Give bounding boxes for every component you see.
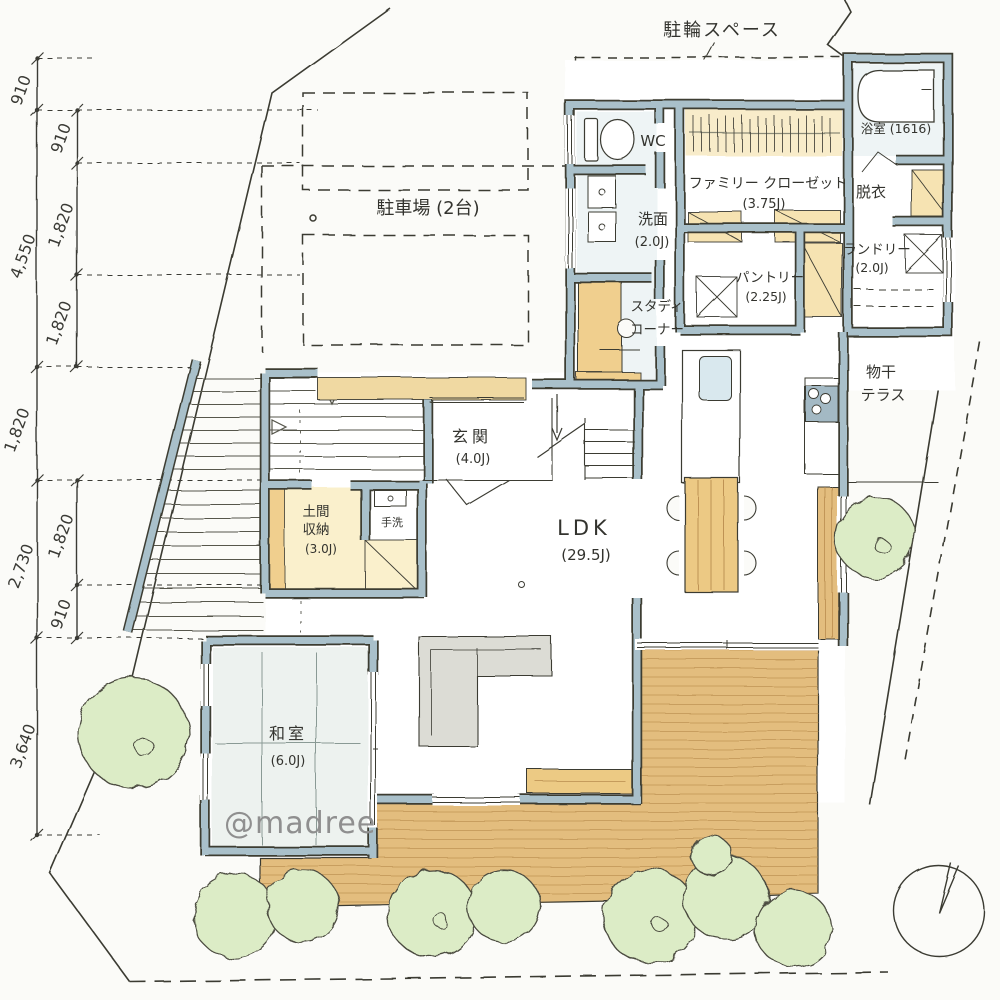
parking-label: 駐車場 (2台) xyxy=(376,198,479,219)
datsui-label: 脱衣 xyxy=(856,183,886,201)
study-label-2: コーナー xyxy=(630,322,684,338)
washitsu-size: (6.0J) xyxy=(271,754,306,769)
kitchen-counter-stove xyxy=(805,378,843,474)
pantry-label: パントリー xyxy=(736,270,804,286)
dim-outer-0: 910 xyxy=(7,73,35,108)
dim-inner-lower-1: 910 xyxy=(47,597,75,632)
floor-plan-page: 駐輪スペース 駐車場 (2台) WC ファミリー クローゼット (3.75J) … xyxy=(0,0,1000,1000)
bike-space-label: 駐輪スペース xyxy=(663,20,781,41)
dim-inner-upper-1: 1,820 xyxy=(44,200,78,250)
terrace-label-2: テラス xyxy=(861,386,906,404)
terrace-label-1: 物干 xyxy=(866,363,896,381)
parking-area xyxy=(262,93,570,352)
senmen-label: 洗面 xyxy=(638,210,668,228)
dim-inner-upper-0: 910 xyxy=(47,121,75,156)
family-closet-rod xyxy=(686,110,842,156)
tearai-label: 手洗 xyxy=(381,515,403,529)
tv-board xyxy=(528,770,634,794)
wood-floor-strip xyxy=(818,487,839,639)
pantry-size: (2.25J) xyxy=(745,289,786,304)
laundry-size: (2.0J) xyxy=(855,260,888,275)
toilet xyxy=(585,119,635,161)
bath-label: 浴室 (1616) xyxy=(861,121,932,136)
kitchen-island xyxy=(682,350,740,483)
understair-storage xyxy=(365,540,423,596)
wc-label: WC xyxy=(640,132,665,150)
retaining-wall xyxy=(128,360,196,632)
north-compass xyxy=(894,863,984,956)
doma-size: (3.0J) xyxy=(305,542,337,556)
bathtub xyxy=(858,70,934,122)
doma-label-2: 収納 xyxy=(303,522,330,538)
doma-storage-shelf xyxy=(267,487,365,591)
genkan-label: 玄関 xyxy=(452,427,492,446)
watermark: @madree xyxy=(224,806,376,841)
laundry-label: ランドリー xyxy=(843,242,911,258)
washitsu-label: 和室 xyxy=(269,724,307,743)
study-label-1: スタディ xyxy=(630,298,683,315)
dim-outer-4: 3,640 xyxy=(6,721,40,771)
doma-label-1: 土間 xyxy=(303,504,330,520)
closet-size: (3.75J) xyxy=(743,197,786,212)
dim-inner-lower-0: 1,820 xyxy=(44,511,78,561)
genkan-size: (4.0J) xyxy=(456,452,491,467)
closet-label: ファミリー クローゼット xyxy=(689,176,847,192)
ldk-size: (29.5J) xyxy=(561,546,611,564)
hand-wash-sink xyxy=(374,490,406,506)
dim-outer-2: 1,820 xyxy=(0,405,34,455)
senmen-size: (2.0J) xyxy=(635,235,670,250)
dim-inner-upper-2: 1,820 xyxy=(42,298,76,348)
floor-plan-drawing: 駐輪スペース 駐車場 (2台) WC ファミリー クローゼット (3.75J) … xyxy=(0,0,1000,1000)
ldk-label: LDK xyxy=(557,516,611,540)
dim-outer-3: 2,730 xyxy=(4,541,38,591)
dimension-labels: 910 4,550 1,820 2,730 3,640 910 1,820 1,… xyxy=(0,73,78,771)
dim-outer-1: 4,550 xyxy=(6,231,40,281)
